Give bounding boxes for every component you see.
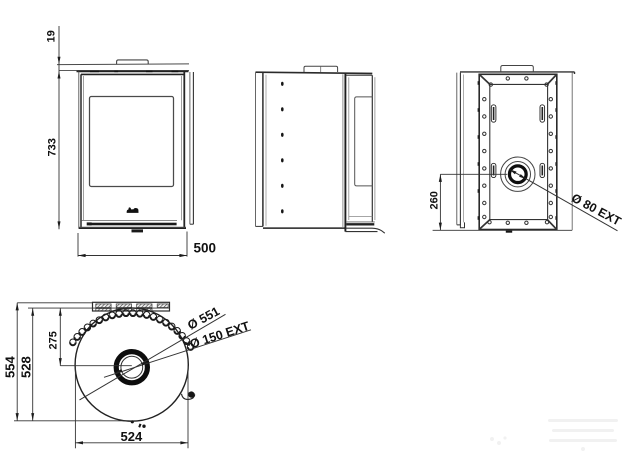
svg-text:Ø 80 EXT: Ø 80 EXT [569,191,624,229]
svg-text:500: 500 [194,241,217,256]
svg-text:260: 260 [429,191,441,209]
svg-text:733: 733 [47,138,59,156]
svg-text:275: 275 [48,331,60,349]
svg-text:19: 19 [46,30,58,42]
svg-text:524: 524 [121,429,143,444]
svg-text:554: 554 [3,356,18,378]
svg-text:528: 528 [19,356,34,378]
